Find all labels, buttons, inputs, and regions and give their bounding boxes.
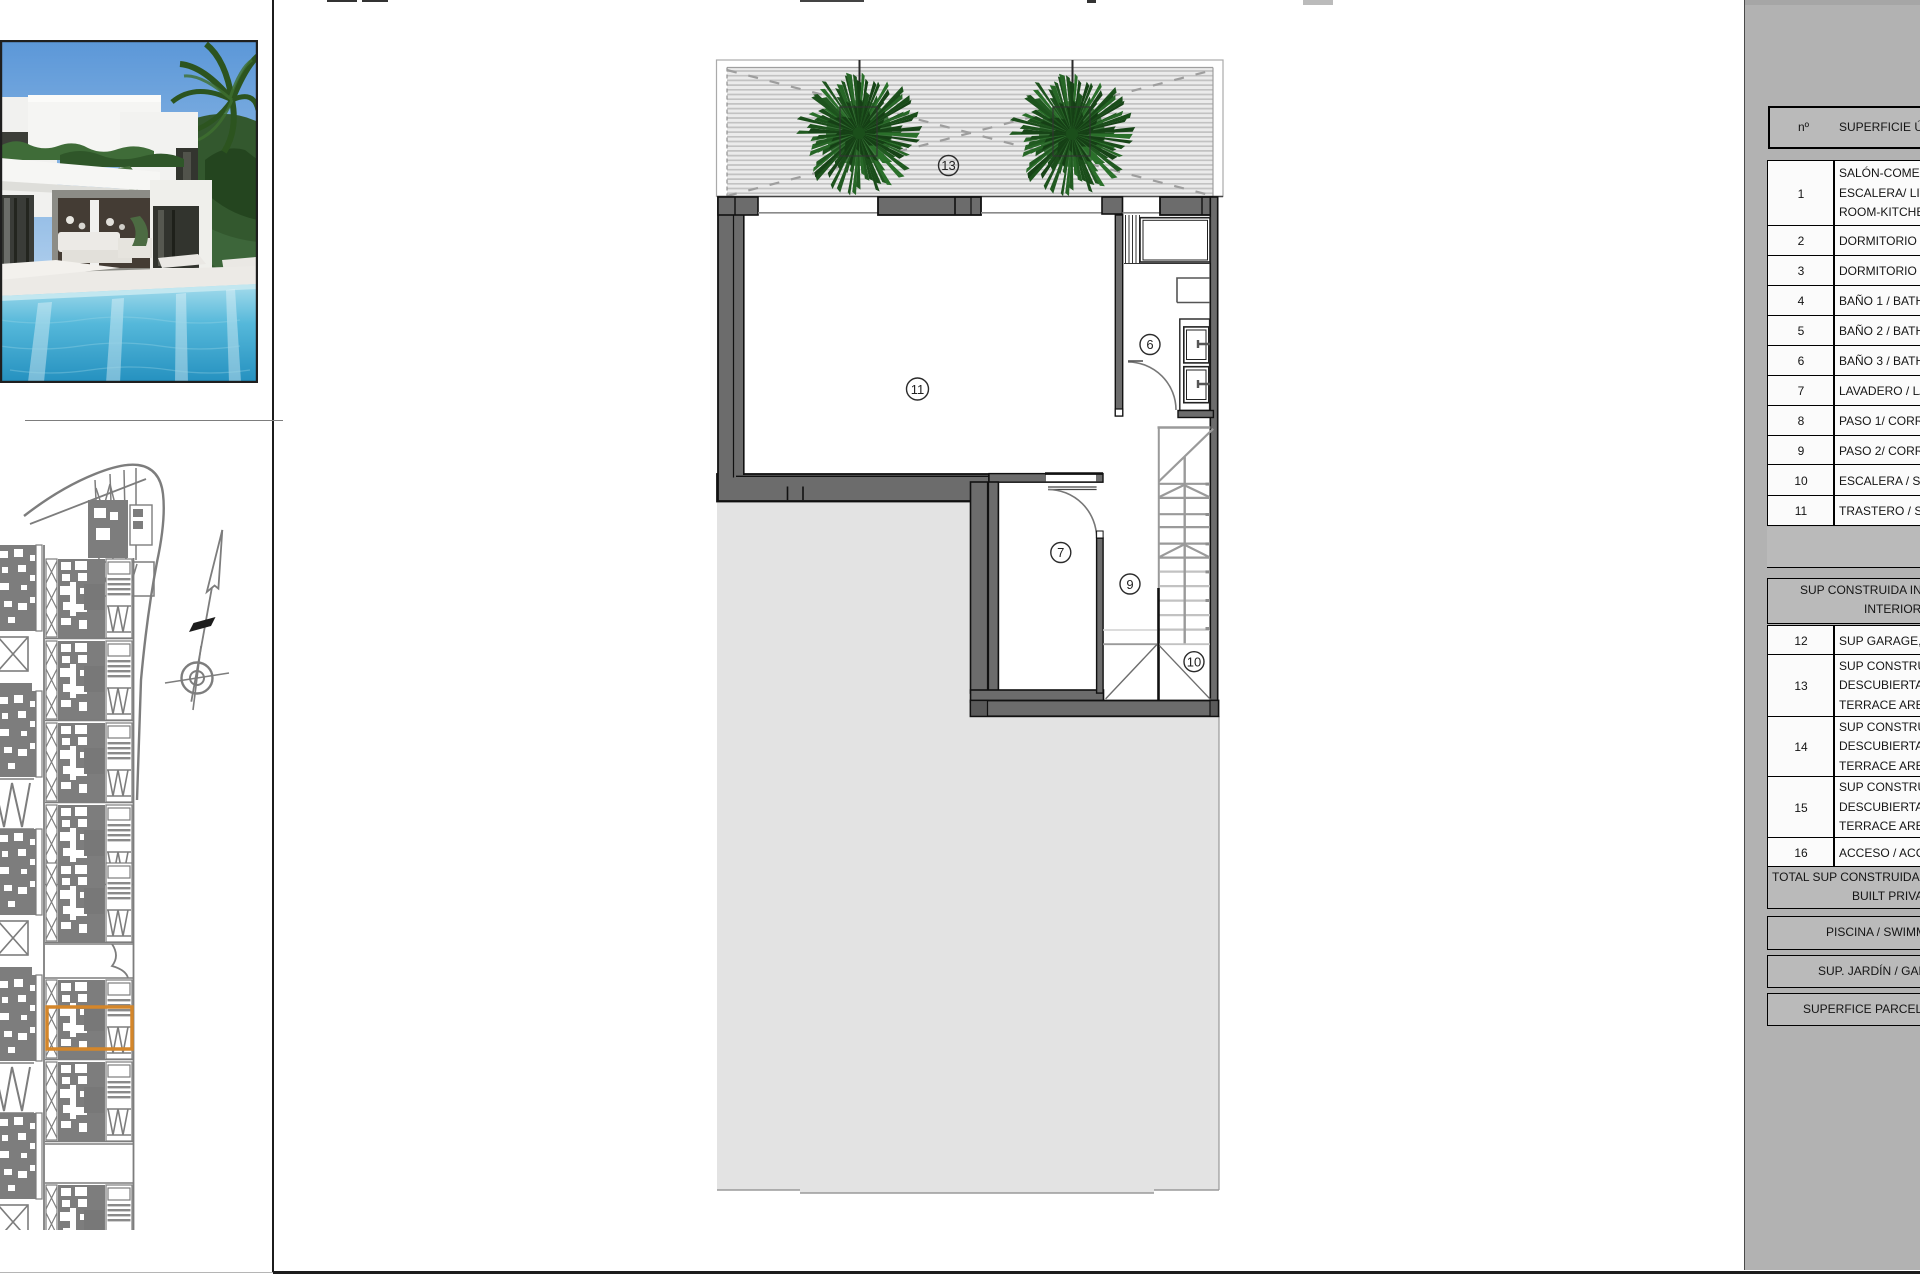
svg-text:13: 13 — [941, 158, 955, 173]
svg-text:6: 6 — [1146, 337, 1153, 352]
svg-text:10: 10 — [1187, 655, 1201, 670]
svg-text:11: 11 — [911, 382, 925, 397]
svg-text:7: 7 — [1057, 545, 1064, 560]
svg-text:9: 9 — [1126, 577, 1133, 592]
